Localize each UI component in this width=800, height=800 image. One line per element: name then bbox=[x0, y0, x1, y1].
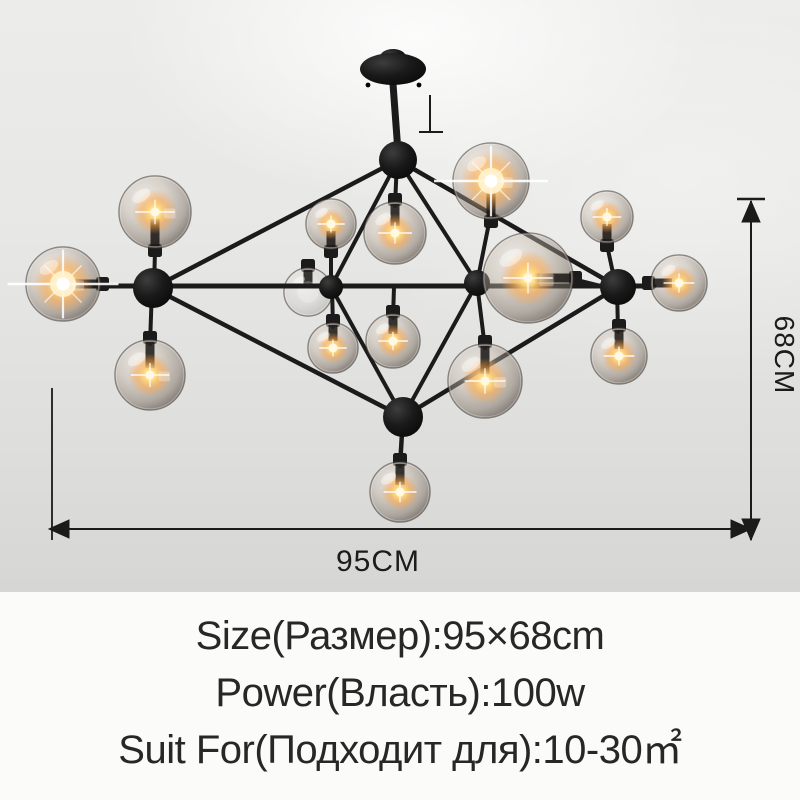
frame-hub bbox=[379, 141, 417, 179]
spec-panel: Size(Размер):95×68cm Power(Власть):100w … bbox=[0, 592, 800, 800]
bulb-core bbox=[396, 488, 405, 497]
glass-reflection bbox=[539, 274, 553, 287]
product-photo: 95CM 68CM bbox=[0, 0, 800, 592]
ceiling-canopy bbox=[360, 49, 426, 87]
bulb-core bbox=[615, 352, 624, 361]
bulb-core bbox=[57, 278, 70, 291]
chandelier-fixture bbox=[8, 49, 708, 522]
glass-globe bbox=[370, 453, 430, 522]
spec-suit-line: Suit For(Подходит для):10-30㎡ bbox=[0, 722, 800, 779]
bulb-core bbox=[329, 344, 338, 353]
bulb-core bbox=[524, 274, 533, 283]
frame-hub bbox=[600, 269, 636, 305]
glass-globe bbox=[119, 176, 191, 257]
glass-reflection bbox=[159, 372, 170, 382]
glass-globe bbox=[306, 199, 356, 258]
chandelier-illustration: 95CM 68CM bbox=[0, 0, 800, 592]
glass-globe bbox=[483, 233, 582, 323]
bulb-core bbox=[675, 279, 684, 288]
glass-reflection bbox=[72, 280, 84, 290]
hang-height-mark bbox=[419, 95, 443, 132]
glass-globe bbox=[366, 305, 420, 368]
height-dimension-label: 68CM bbox=[769, 316, 800, 395]
bulb-core bbox=[151, 208, 160, 217]
height-dimension bbox=[737, 199, 765, 540]
bulb-core bbox=[146, 371, 155, 380]
glass-globe bbox=[448, 335, 522, 418]
glass-reflection bbox=[164, 208, 176, 218]
frame-hub bbox=[383, 397, 423, 437]
glass-globe bbox=[591, 319, 647, 384]
glass-globe bbox=[581, 191, 633, 252]
bulb-core bbox=[485, 175, 498, 188]
glass-globe bbox=[434, 143, 548, 228]
frame-hub bbox=[319, 275, 343, 299]
bulb-core bbox=[391, 229, 400, 238]
frame-hub bbox=[133, 268, 173, 308]
frame-rod bbox=[153, 160, 398, 288]
spec-text: Size(Размер):95×68cm Power(Власть):100w … bbox=[0, 608, 800, 779]
spec-power-line: Power(Власть):100w bbox=[0, 665, 800, 722]
glass-globe bbox=[8, 247, 119, 321]
bulb-core bbox=[603, 213, 612, 222]
glass-reflection bbox=[494, 377, 506, 387]
bulb-core bbox=[481, 377, 490, 386]
bulb-core bbox=[389, 337, 398, 346]
spec-size-line: Size(Размер):95×68cm bbox=[0, 608, 800, 665]
glass-globe bbox=[115, 331, 185, 410]
glass-reflection bbox=[501, 177, 513, 188]
glass-globe bbox=[642, 255, 707, 311]
up-arrowhead-icon bbox=[742, 201, 760, 222]
width-dimension-label: 95CM bbox=[336, 545, 420, 578]
bulb-core bbox=[327, 220, 336, 229]
